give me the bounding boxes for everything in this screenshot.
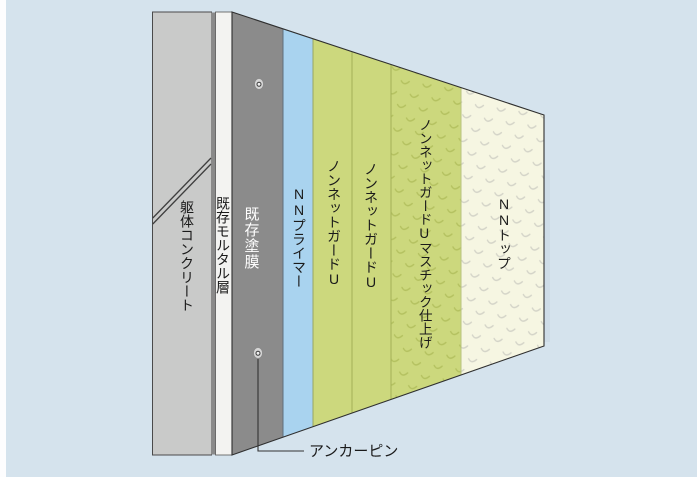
left-margin (0, 0, 6, 477)
layer-label-nn-primer: NNプライマー (292, 186, 306, 288)
anchor-pin-bottom-icon (253, 347, 262, 358)
diagram-canvas (0, 0, 697, 477)
layer-label-nonnet-guard-u-1: ノンネットガードU (327, 159, 341, 287)
layer-label-existing-coating: 既存塗膜 (244, 206, 259, 270)
anchor-pin-top-icon (254, 78, 263, 89)
layer-label-nn-top: NNトップ (497, 196, 511, 270)
layer-label-nonnet-guard-u-mastic: ノンネットガードUマスチック仕上げ (417, 118, 431, 349)
panel-shadow (545, 170, 551, 342)
anchor-pin-label: アンカーピン (309, 444, 398, 459)
layer-label-mortar: 既存モルタル層 (216, 196, 230, 294)
layer-label-concrete: 躯体コンクリート (180, 200, 194, 312)
wall-layer-diagram: 躯体コンクリート 既存モルタル層 既存塗膜 NNプライマー ノンネットガードU … (0, 0, 697, 477)
layer-label-nonnet-guard-u-2: ノンネットガードU (364, 162, 378, 290)
